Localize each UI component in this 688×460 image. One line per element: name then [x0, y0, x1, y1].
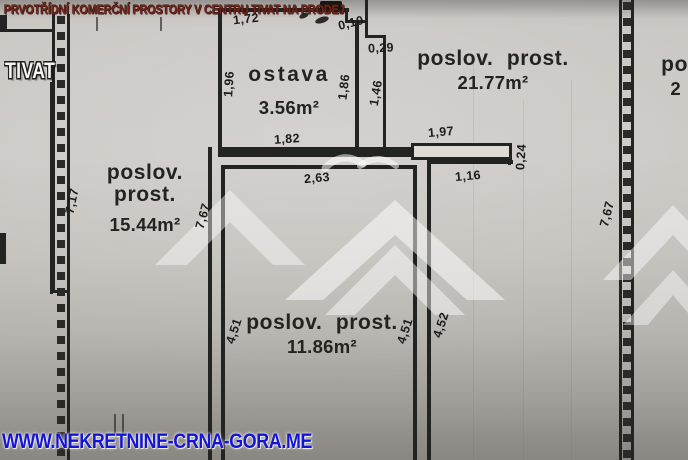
wall	[160, 17, 162, 31]
wall	[413, 165, 417, 460]
dimension-label: 7,67	[597, 200, 617, 229]
listing-title: PRVOTŘÍDNÍ KOMERČNÍ PROSTORY V CENTRU TI…	[4, 3, 345, 17]
room-poslov-1186: poslov. prost. 11.86m²	[238, 312, 406, 358]
dimension-label: 1,72	[232, 11, 259, 28]
dimension-label: 1,82	[274, 131, 301, 147]
wall	[427, 160, 431, 460]
room-ostava: ostava 3.56m²	[224, 64, 354, 119]
dimension-label: 1,97	[427, 124, 454, 140]
hatched-wall	[623, 2, 631, 460]
floorplan-photo: PRVOTŘÍDNÍ KOMERČNÍ PROSTORY V CENTRU TI…	[0, 0, 688, 460]
room-area: 11.86m²	[238, 336, 406, 358]
dimension-label: 2,63	[303, 170, 330, 186]
room-area: 21.77m²	[398, 72, 588, 94]
dimension-label: 0,24	[513, 144, 529, 171]
wall	[50, 82, 53, 294]
wall	[0, 15, 7, 30]
room-name: po	[655, 54, 688, 76]
wall	[619, 0, 622, 460]
watermark-url: WWW.NEKRETNINE-CRNA-GORA.ME	[2, 430, 312, 454]
room-area: 3.56m²	[224, 97, 354, 119]
photo-seam	[571, 80, 572, 460]
dimension-label: 1,16	[454, 168, 481, 184]
dimension-label: 0,29	[368, 40, 395, 55]
wall	[631, 0, 634, 460]
room-poslov-2177: poslov. prost. 21.77m²	[398, 48, 588, 94]
photo-seam	[473, 60, 474, 460]
wall	[0, 233, 6, 264]
room-partial-right: po 2	[655, 54, 688, 100]
hatched-wall	[57, 16, 65, 460]
wall	[221, 165, 225, 460]
dimension-label: 1,96	[221, 71, 237, 98]
wall	[221, 165, 417, 169]
location-label: TIVAT	[5, 58, 55, 84]
room-name: poslov. prost.	[70, 162, 220, 206]
wall	[67, 14, 70, 460]
room-name: poslov. prost.	[238, 312, 406, 334]
watermark-logo-partial-icon	[598, 160, 688, 330]
wall	[0, 29, 53, 32]
wall	[427, 160, 513, 164]
wall	[218, 147, 412, 157]
wall	[411, 143, 512, 160]
wall	[355, 20, 359, 155]
room-name: poslov. prost.	[398, 48, 588, 70]
wall	[365, 0, 368, 38]
dimension-label: 4,52	[430, 311, 451, 340]
room-area: 2	[655, 78, 681, 100]
room-name: ostava	[224, 64, 354, 86]
wall	[96, 17, 98, 31]
